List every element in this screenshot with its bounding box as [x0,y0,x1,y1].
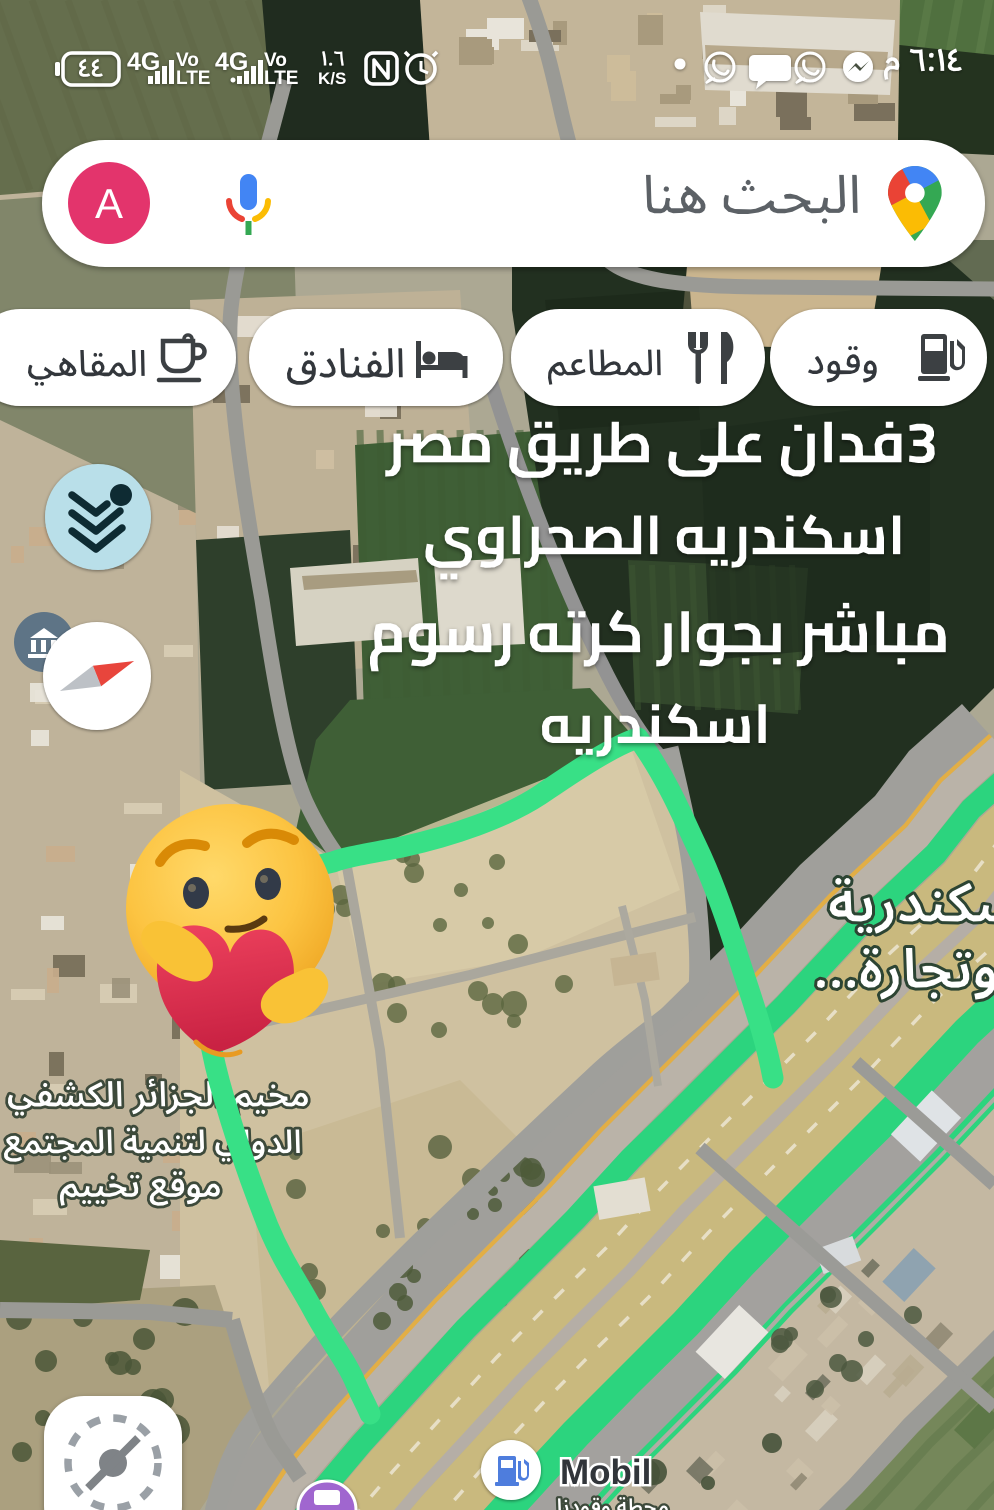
svg-text:4G: 4G [215,48,248,76]
svg-text:A: A [95,180,123,227]
svg-text:K/S: K/S [318,69,346,88]
svg-text:LTE: LTE [264,68,298,89]
svg-text:Mobil: Mobil [560,1453,651,1492]
svg-text:LTE: LTE [176,68,210,89]
